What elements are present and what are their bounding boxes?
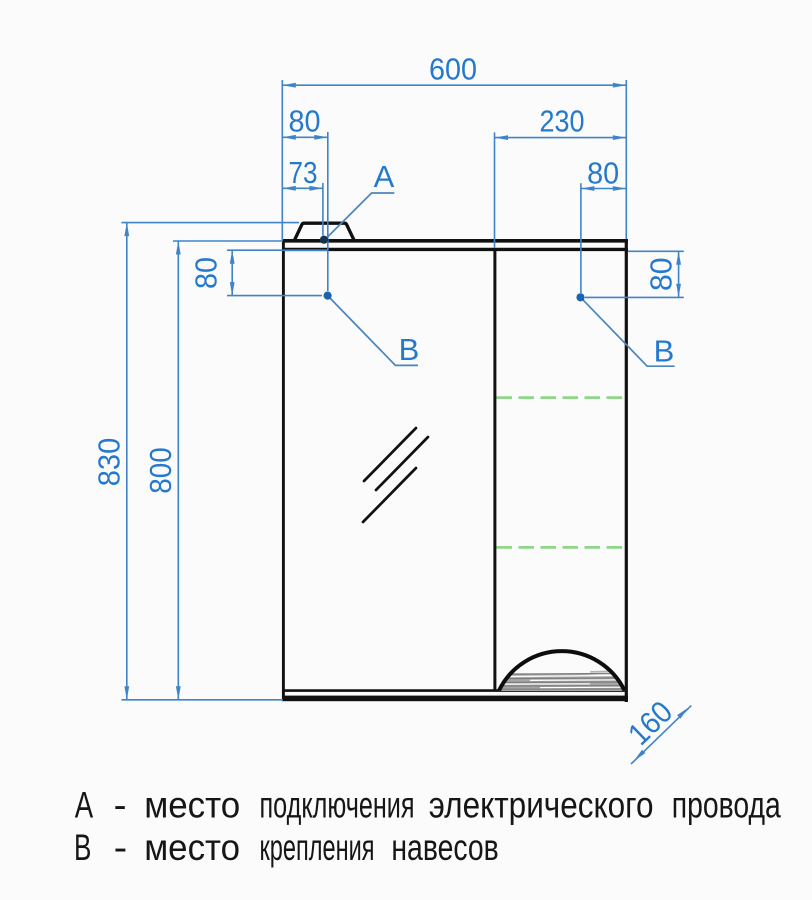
svg-text:80: 80: [587, 155, 619, 190]
svg-text:В: В: [74, 827, 91, 868]
svg-text:электрического: электрического: [429, 785, 654, 826]
svg-text:крепления: крепления: [260, 827, 375, 868]
svg-text:место: место: [144, 785, 240, 826]
svg-text:В: В: [654, 334, 675, 369]
svg-text:830: 830: [92, 438, 127, 487]
svg-text:подключения: подключения: [260, 785, 415, 826]
svg-text:А: А: [374, 159, 395, 194]
svg-text:А: А: [75, 785, 94, 826]
svg-text:провода: провода: [672, 785, 781, 826]
svg-text:В: В: [399, 332, 420, 367]
svg-text:80: 80: [644, 258, 679, 292]
svg-text:230: 230: [540, 103, 585, 138]
svg-text:800: 800: [143, 447, 178, 494]
svg-text:навесов: навесов: [391, 827, 498, 868]
svg-text:80: 80: [189, 257, 224, 289]
svg-text:-: -: [114, 785, 127, 826]
svg-text:80: 80: [289, 103, 321, 138]
svg-text:73: 73: [289, 155, 318, 190]
svg-text:-: -: [114, 827, 128, 868]
svg-text:место: место: [144, 827, 240, 868]
svg-text:600: 600: [429, 51, 477, 86]
